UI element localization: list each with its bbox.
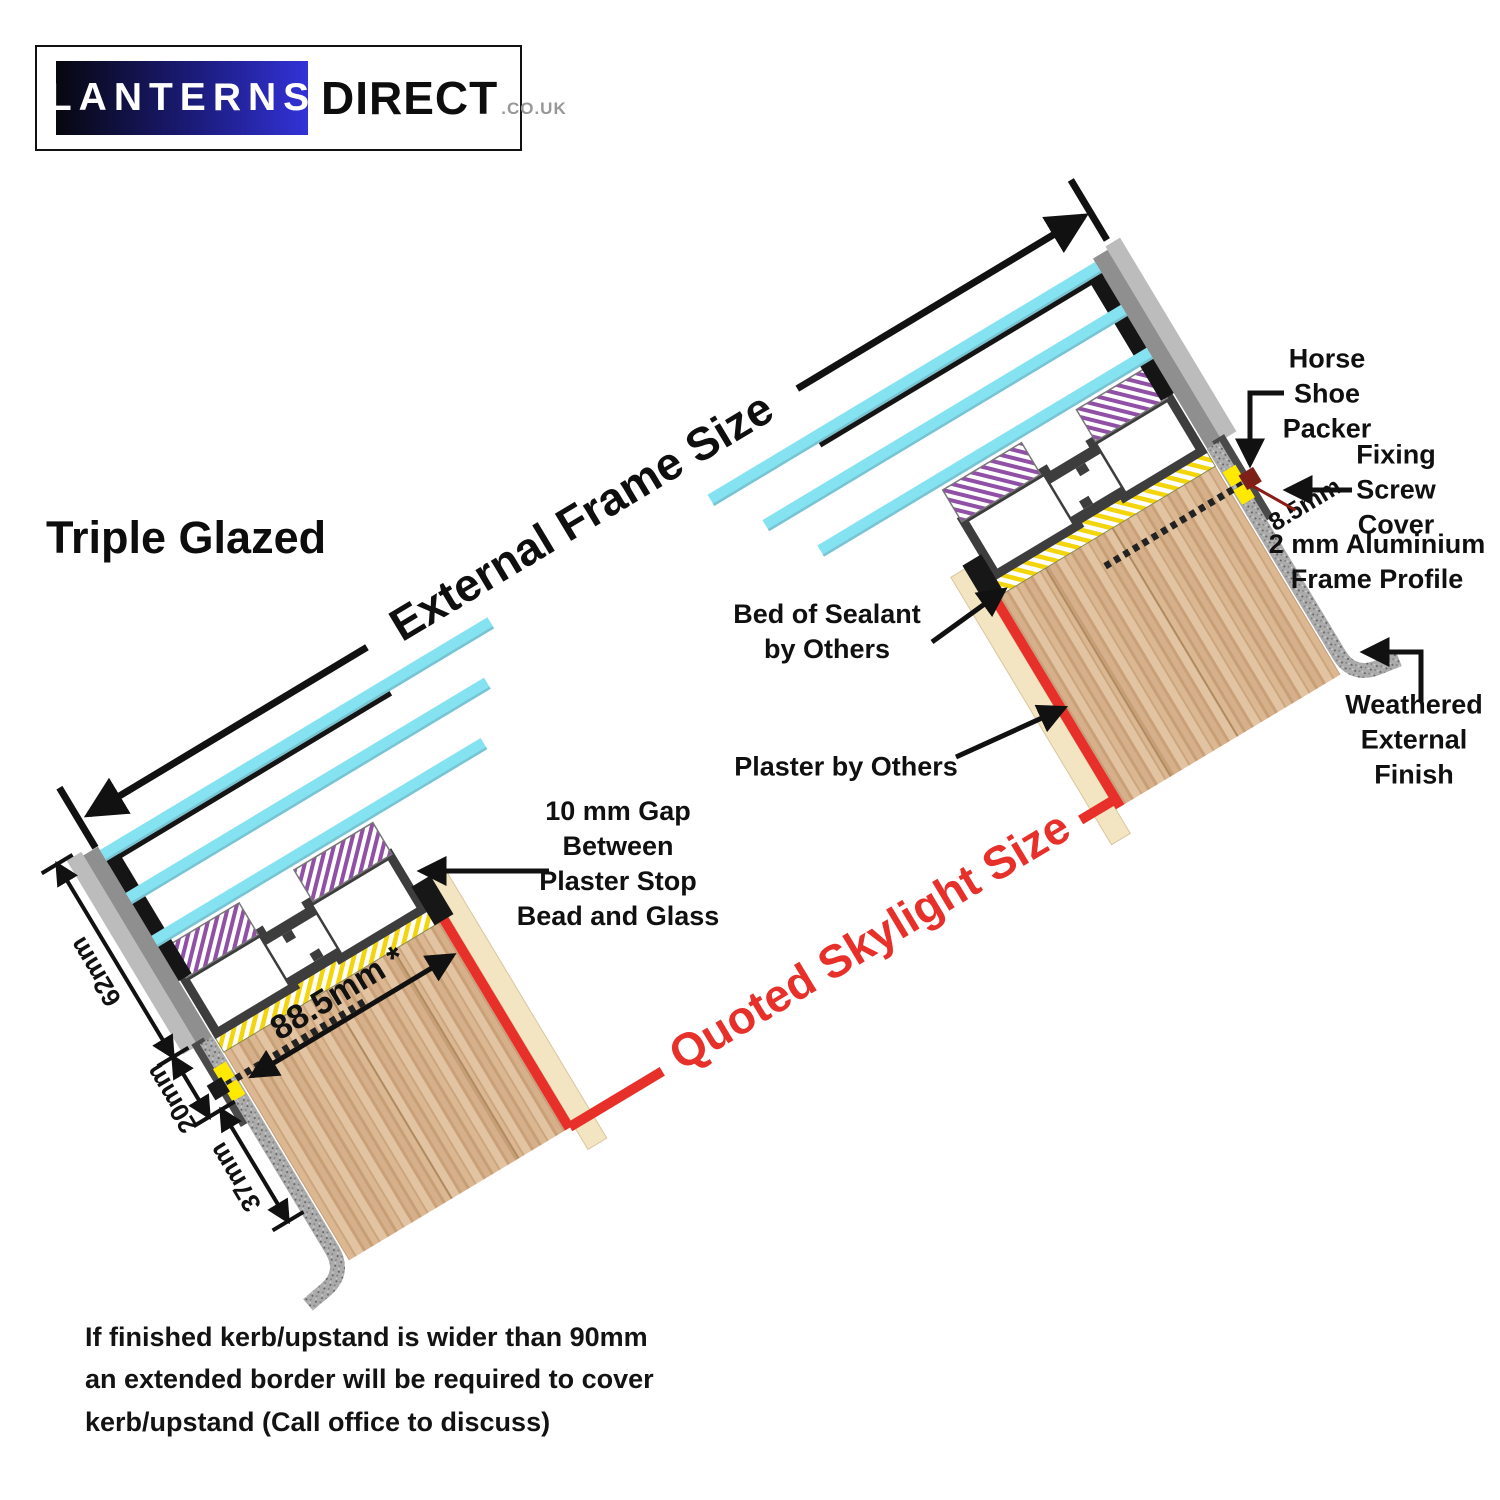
note-line: If finished kerb/upstand is wider than 9…: [85, 1316, 654, 1358]
dim-text-20mm: 20mm: [139, 1059, 203, 1139]
label-line: 10 mm Gap: [517, 794, 720, 829]
label-line: Plaster by Others: [734, 749, 958, 784]
label-line: Horse: [1283, 341, 1372, 376]
label-line: Shoe: [1283, 376, 1372, 411]
label-line: 2 mm Aluminium: [1269, 527, 1486, 562]
kerb-upstand-note: If finished kerb/upstand is wider than 9…: [85, 1316, 654, 1443]
label-line: Bead and Glass: [517, 899, 720, 934]
page-title: Triple Glazed: [46, 512, 326, 564]
dim-end-bar: [59, 788, 95, 848]
label-frame-profile: 2 mm Aluminium Frame Profile: [1269, 527, 1486, 597]
label-weathered-external-finish: Weathered External Finish: [1345, 687, 1483, 792]
label-line: Frame Profile: [1269, 562, 1486, 597]
note-line: an extended border will be required to c…: [85, 1358, 654, 1400]
label-line: Bed of Sealant: [733, 597, 921, 632]
label-line: External: [1345, 722, 1483, 757]
label-line: Fixing: [1356, 437, 1436, 472]
dim-tick: [42, 855, 73, 874]
label-plaster-by-others: Plaster by Others: [734, 749, 958, 784]
leader-horse-shoe-packer: [1250, 393, 1284, 464]
logo-tld: .CO.UK: [501, 99, 567, 119]
note-line: kerb/upstand (Call office to discuss): [85, 1401, 654, 1443]
logo-lanterns-block: LANTERNS: [56, 61, 308, 135]
label-line: Between: [517, 829, 720, 864]
label-horse-shoe-packer: Horse Shoe Packer: [1283, 341, 1372, 446]
label-bed-of-sealant: Bed of Sealant by Others: [733, 597, 921, 667]
label-line: by Others: [733, 632, 921, 667]
label-line: Weathered: [1345, 687, 1483, 722]
dim-tick: [273, 1212, 304, 1231]
external-frame-size-label: External Frame Size: [380, 381, 782, 651]
lanterns-direct-logo: LANTERNS DIRECT .CO.UK: [35, 45, 522, 151]
quoted-skylight-size-label: Quoted Skylight Size: [660, 800, 1079, 1080]
logo-brand-primary: LANTERNS: [48, 76, 316, 120]
label-10mm-gap: 10 mm Gap Between Plaster Stop Bead and …: [517, 794, 720, 934]
label-line: Finish: [1345, 758, 1483, 793]
label-line: Screw: [1356, 472, 1436, 507]
logo-brand-secondary: DIRECT: [321, 71, 498, 125]
dim-end-bar: [1071, 180, 1107, 240]
logo-direct-block: DIRECT .CO.UK: [321, 71, 567, 125]
left-jamb-section: 62mm 20mm 37mm 88.5mm *: [25, 609, 750, 1328]
dim-text-37mm: 37mm: [203, 1137, 267, 1217]
label-line: Plaster Stop: [517, 864, 720, 899]
